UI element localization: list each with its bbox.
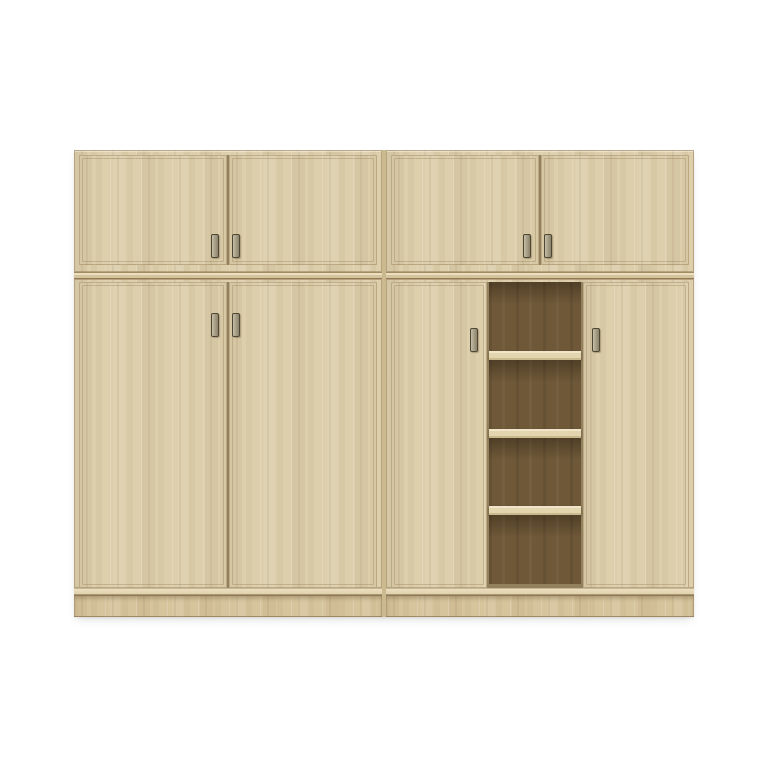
section-divider: [386, 272, 694, 279]
shelf-board: [489, 429, 581, 438]
shelf-compartment: [489, 515, 581, 584]
shelf-compartment: [489, 282, 581, 351]
shelf-compartment: [489, 360, 581, 429]
cabinet-unit-left: [74, 150, 382, 617]
bottom-board-edge: [386, 588, 694, 595]
door-handle: [592, 328, 600, 352]
left-top-cabinet: [74, 150, 382, 272]
bottom-board-edge: [74, 588, 382, 595]
product-photo-background: [0, 0, 768, 768]
cabinet: [74, 150, 694, 617]
plinth: [386, 595, 694, 617]
right-bottom-cabinet: [386, 279, 694, 588]
cabinet-unit-right: [386, 150, 694, 617]
door-handle: [523, 234, 531, 258]
door-handle: [232, 313, 240, 337]
left-top-door-right: [229, 155, 377, 265]
open-shelf-column: [489, 282, 581, 584]
right-bottom-door-right: [583, 282, 689, 588]
right-bottom-door-left: [391, 282, 487, 588]
shelf-board: [489, 506, 581, 515]
left-bottom-cabinet: [74, 279, 382, 588]
left-bottom-door-right: [229, 282, 377, 588]
door-handle: [211, 234, 219, 258]
right-top-door-left: [391, 155, 539, 265]
section-divider: [74, 272, 382, 279]
right-top-cabinet: [386, 150, 694, 272]
shelf-compartment: [489, 438, 581, 507]
door-handle: [544, 234, 552, 258]
left-bottom-door-left: [79, 282, 227, 588]
left-top-doors: [79, 155, 377, 265]
left-top-door-left: [79, 155, 227, 265]
right-top-doors: [391, 155, 689, 265]
left-bottom-doors: [79, 282, 377, 588]
door-handle: [211, 313, 219, 337]
plinth: [74, 595, 382, 617]
door-handle: [470, 328, 478, 352]
right-top-door-right: [541, 155, 689, 265]
shelf-board: [489, 351, 581, 360]
right-bottom-doors: [391, 282, 689, 588]
door-handle: [232, 234, 240, 258]
